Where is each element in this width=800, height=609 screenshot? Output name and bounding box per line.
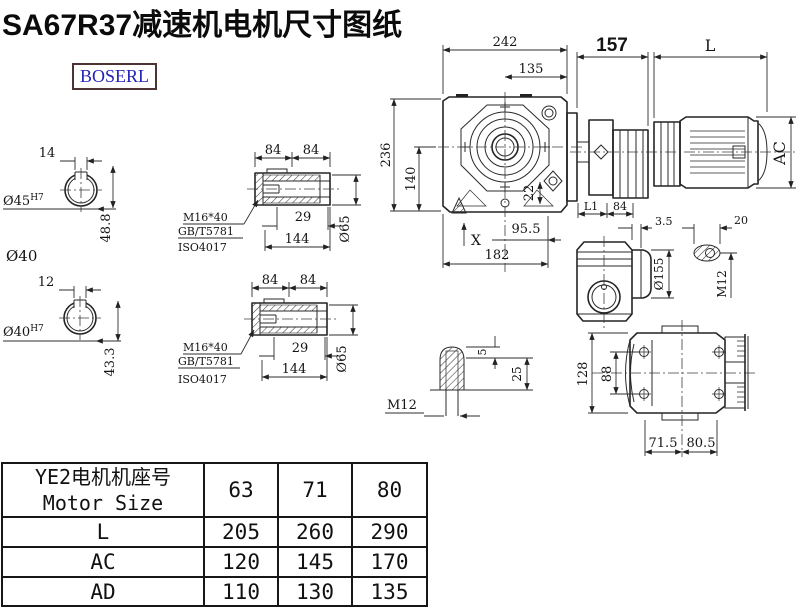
col-63: 63 xyxy=(204,463,278,517)
dim-AC: AC xyxy=(770,141,789,166)
row-label-AC: AC xyxy=(2,547,204,577)
table-header-row: YE2电机机座号 Motor Size 63 71 80 xyxy=(2,463,427,517)
dim-14: 14 xyxy=(39,146,56,161)
dim-25: 25 xyxy=(510,366,524,381)
cell-AD-80: 135 xyxy=(352,577,427,606)
dim-48-8: 48.8 xyxy=(99,214,114,243)
dim-43-3: 43.3 xyxy=(103,348,118,377)
dim-140: 140 xyxy=(404,167,419,192)
cell-AD-63: 110 xyxy=(204,577,278,606)
dim-95-5: 95.5 xyxy=(512,222,541,237)
dim-155: Ø155 xyxy=(652,258,666,291)
label-bore-45: Ø45H7 xyxy=(3,193,44,209)
dim-182: 182 xyxy=(485,248,510,263)
label-bolt-b: M16*40 xyxy=(183,341,228,354)
drawing-sheet: SA67R37减速机电机尺寸图纸 BOSERL xyxy=(0,0,800,609)
dim-144-b: 144 xyxy=(282,362,307,377)
dim-80-5: 80.5 xyxy=(687,436,716,451)
table-row: L 205 260 290 xyxy=(2,517,427,547)
cell-L-71: 260 xyxy=(278,517,352,547)
cell-L-80: 290 xyxy=(352,517,427,547)
dim-65-b: Ø65 xyxy=(335,345,350,372)
dim-5: 5 xyxy=(476,349,489,356)
table-row: AC 120 145 170 xyxy=(2,547,427,577)
dim-135: 135 xyxy=(519,62,544,77)
cell-AC-80: 170 xyxy=(352,547,427,577)
shaft-section-bottom: 12 Ø40H7 43.3 xyxy=(3,275,121,376)
label-std2: ISO4017 xyxy=(178,241,227,254)
cell-AD-71: 130 xyxy=(278,577,352,606)
dim-12: 12 xyxy=(38,275,55,290)
label-std1-b: GB/T5781 xyxy=(178,355,234,368)
dim-29-b: 29 xyxy=(292,341,309,356)
dim-84-stage: 84 xyxy=(613,200,627,213)
dim-L1: L1 xyxy=(584,200,598,213)
cell-AC-63: 120 xyxy=(204,547,278,577)
dim-m12-plug: M12 xyxy=(387,398,417,413)
dim-128: 128 xyxy=(576,362,591,387)
dim-84a-b: 84 xyxy=(262,273,279,288)
row-label-L: L xyxy=(2,517,204,547)
dim-L: L xyxy=(705,36,716,55)
shaft-section-top: 14 Ø45H7 48.8 Ø40 xyxy=(3,146,116,265)
dim-84b-b: 84 xyxy=(300,273,317,288)
motor-size-table: YE2电机机座号 Motor Size 63 71 80 L 205 260 2… xyxy=(1,462,428,607)
header-motor-size: YE2电机机座号 Motor Size xyxy=(2,463,204,517)
reducer-side-view: Ø155 3.5 20 M12 xyxy=(577,214,748,330)
col-71: 71 xyxy=(278,463,352,517)
hollow-shaft-bottom: 84 84 M16*40 GB/T5781 ISO4017 29 144 Ø65 xyxy=(178,273,358,386)
label-std2-b: ISO4017 xyxy=(178,373,227,386)
dim-157: 157 xyxy=(596,35,628,56)
bolt-detail-view: M12 5 25 xyxy=(385,336,533,416)
hollow-shaft-top: 84 84 M16*40 GB/T5781 ISO4017 29 144 Ø65 xyxy=(178,143,361,254)
table-row: AD 110 130 135 xyxy=(2,577,427,606)
dim-x-marker: X xyxy=(471,233,481,249)
reducer-top-view: 128 88 71.5 80.5 xyxy=(576,320,757,457)
label-std1: GB/T5781 xyxy=(178,225,234,238)
dim-71-5: 71.5 xyxy=(649,436,678,451)
gearbox-front-view: 242 135 236 140 22 95.5 X 182 xyxy=(379,35,583,272)
cell-L-63: 205 xyxy=(204,517,278,547)
plug-top-view xyxy=(694,245,720,261)
dim-144: 144 xyxy=(285,232,310,247)
cell-AC-71: 145 xyxy=(278,547,352,577)
dim-236: 236 xyxy=(379,143,394,168)
dim-3-5: 3.5 xyxy=(655,215,673,228)
dim-22: 22 xyxy=(522,185,537,202)
dim-88: 88 xyxy=(600,366,615,383)
label-bolt: M16*40 xyxy=(183,211,228,224)
label-d40: Ø40 xyxy=(6,247,37,265)
dim-65: Ø65 xyxy=(338,215,353,242)
dim-84b: 84 xyxy=(303,143,320,158)
assembly-side-view: 157 L AC L1 84 xyxy=(570,35,796,218)
dim-m12-side: M12 xyxy=(715,270,729,298)
dim-29: 29 xyxy=(295,210,312,225)
row-label-AD: AD xyxy=(2,577,204,606)
label-bore-40: Ø40H7 xyxy=(3,324,44,340)
col-80: 80 xyxy=(352,463,427,517)
dim-20: 20 xyxy=(734,214,748,227)
dim-84a: 84 xyxy=(265,143,282,158)
mount-marker xyxy=(452,198,466,213)
dim-242: 242 xyxy=(493,35,518,50)
